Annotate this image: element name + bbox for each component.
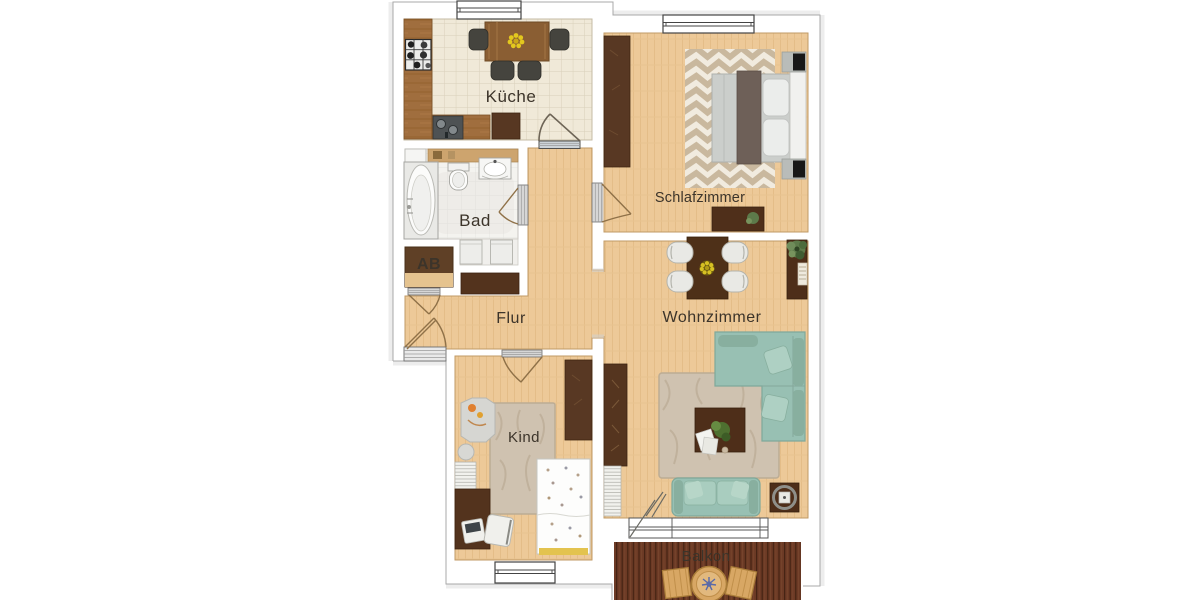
svg-text:Flur: Flur	[496, 310, 526, 327]
svg-text:Küche: Küche	[486, 87, 537, 106]
svg-text:AB: AB	[417, 256, 441, 273]
svg-text:Kind: Kind	[508, 429, 540, 446]
svg-text:Schlafzimmer: Schlafzimmer	[655, 190, 745, 206]
svg-text:Bad: Bad	[459, 211, 491, 230]
svg-text:Balkon: Balkon	[682, 548, 731, 565]
svg-text:Wohnzimmer: Wohnzimmer	[663, 309, 762, 326]
